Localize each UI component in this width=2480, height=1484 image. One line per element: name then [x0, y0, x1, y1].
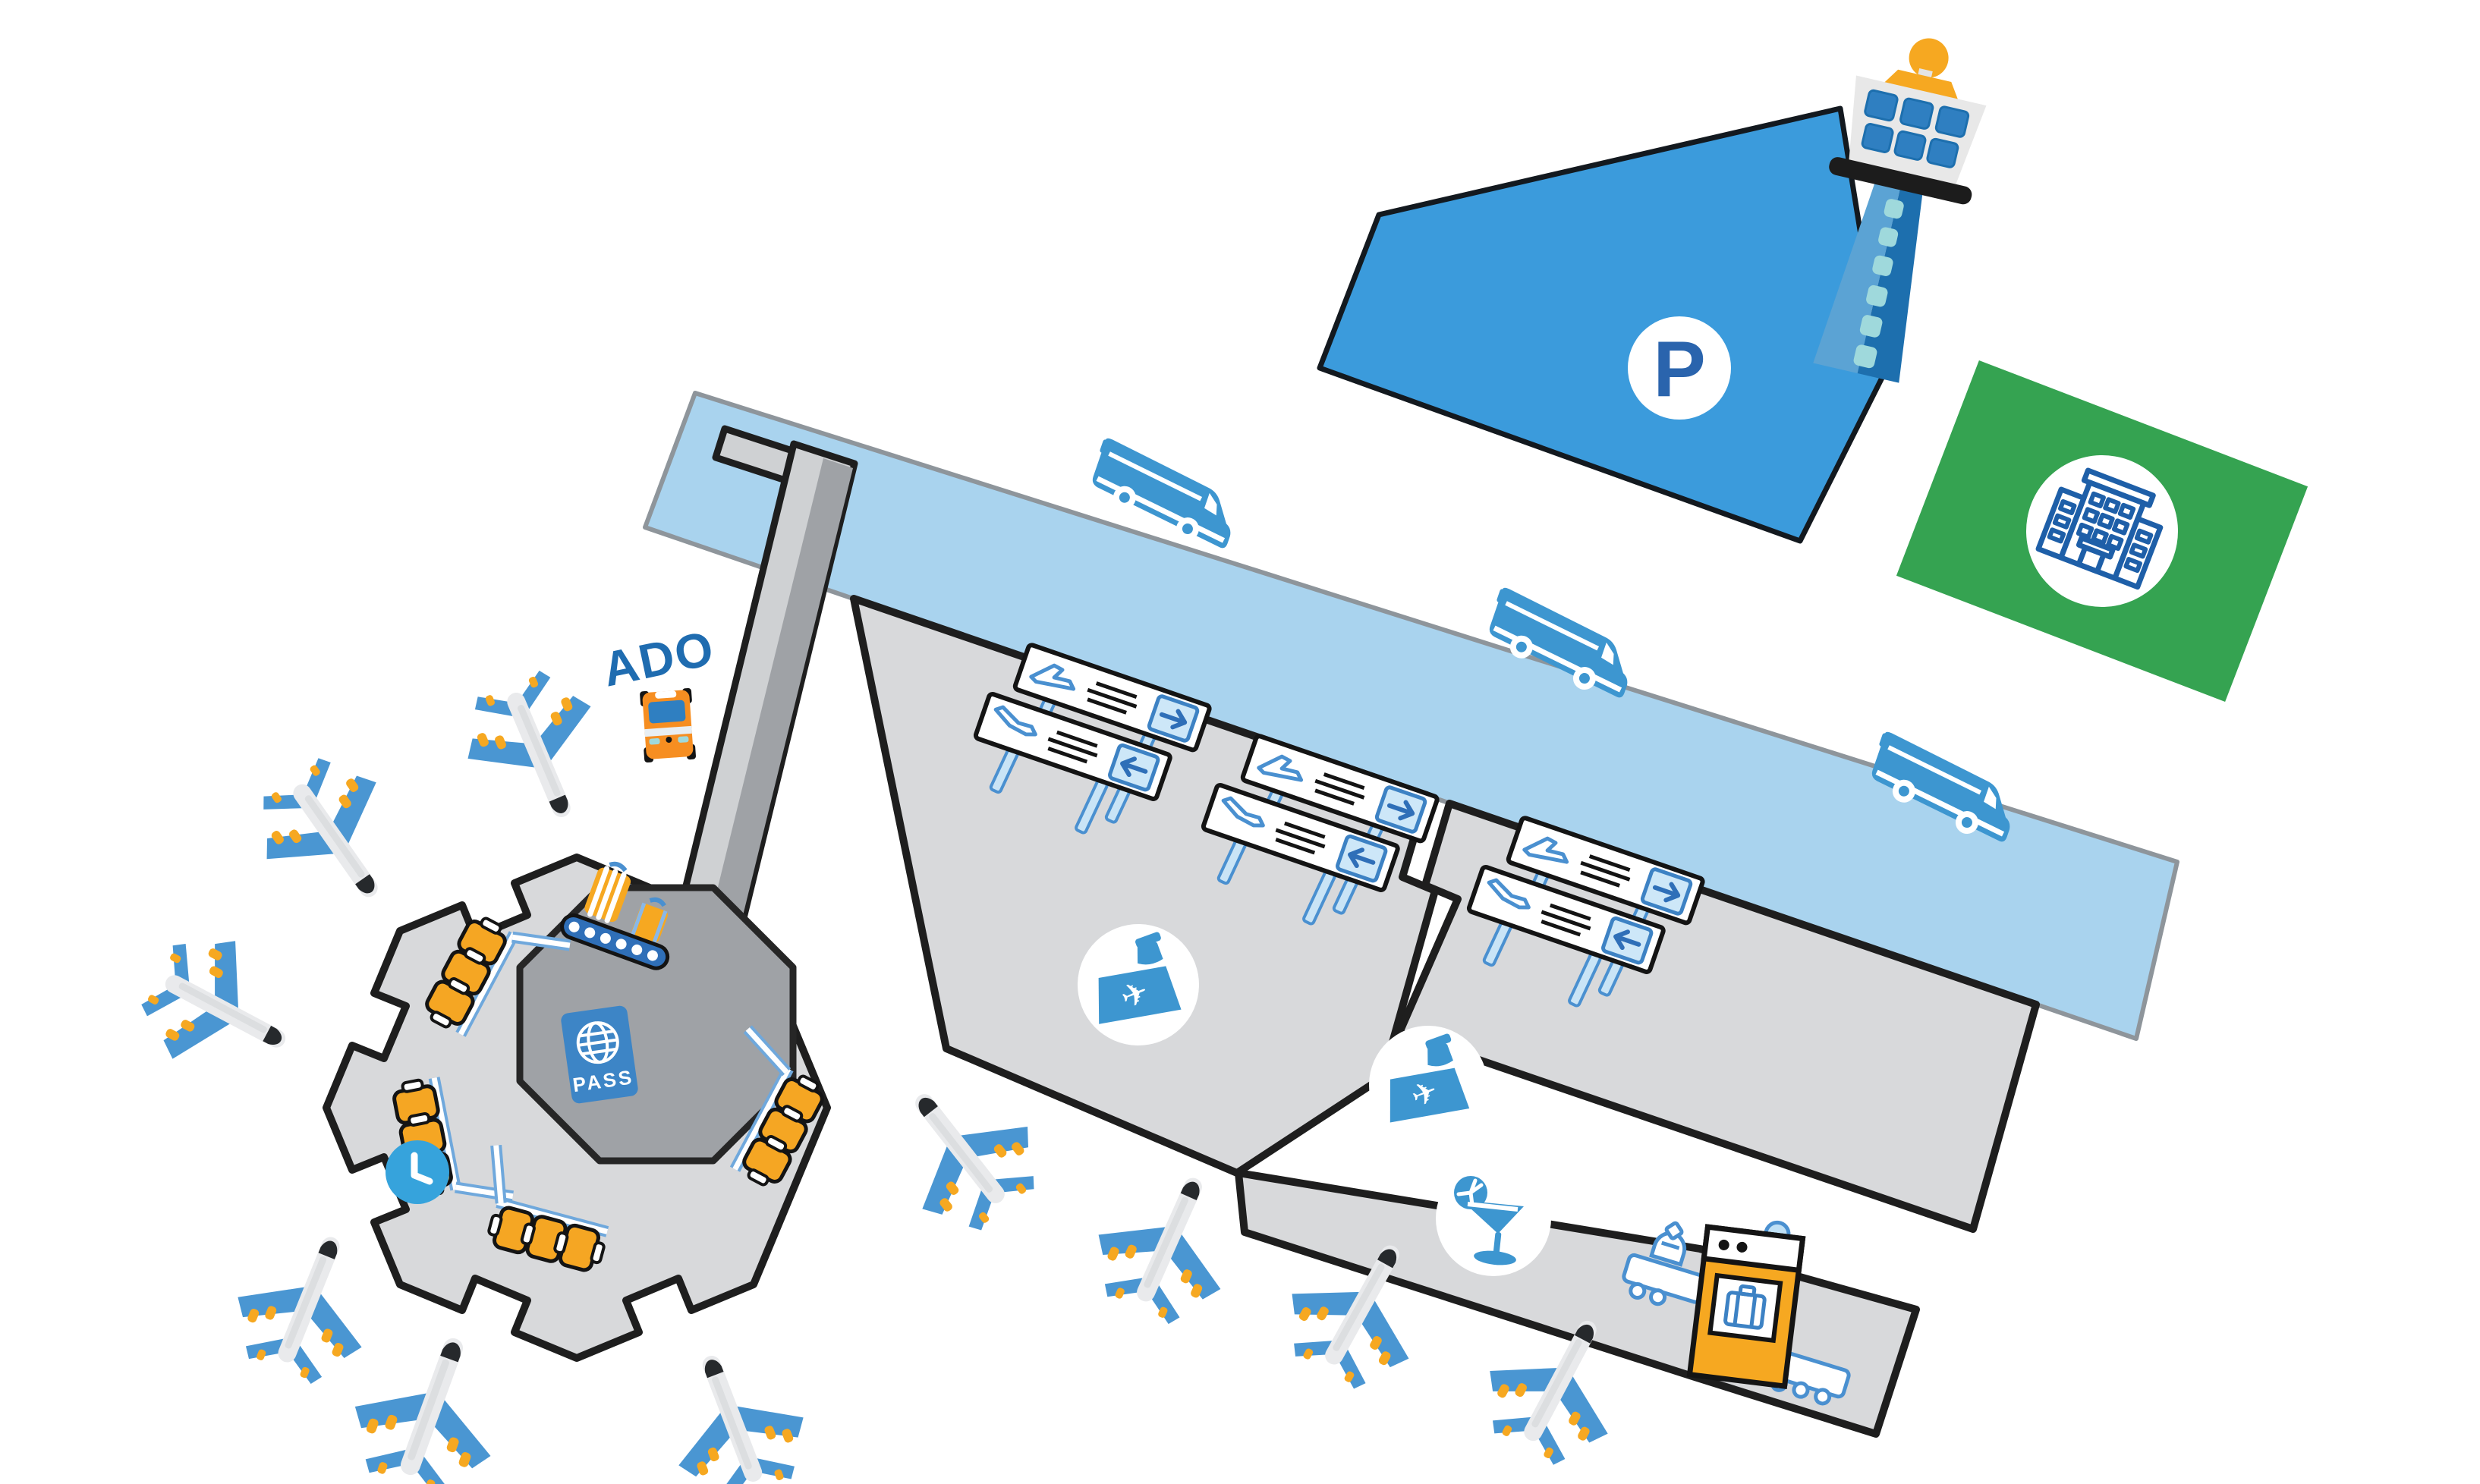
- hotel-zone[interactable]: [1896, 360, 2308, 702]
- bus-icon: [640, 688, 696, 763]
- bar-icon[interactable]: [1436, 1161, 1551, 1276]
- bus-stop-label: ADO: [598, 620, 719, 696]
- airplane-icon: [236, 739, 428, 934]
- airplane-icon: [447, 658, 626, 843]
- airplane-icon: [335, 1314, 524, 1484]
- parking-label: P: [1653, 325, 1705, 413]
- airplane-icon: [218, 1212, 395, 1396]
- clock-icon[interactable]: [386, 1140, 449, 1204]
- passport-icon[interactable]: PASS: [560, 1005, 639, 1104]
- bus-stop[interactable]: ADO: [598, 620, 719, 762]
- parking-lot[interactable]: P: [1320, 108, 1884, 541]
- airplane-icon: [1077, 1152, 1257, 1338]
- airport-map: P: [0, 0, 2480, 1484]
- airplane-icon: [126, 916, 316, 1102]
- airplane-icon: [646, 1332, 822, 1484]
